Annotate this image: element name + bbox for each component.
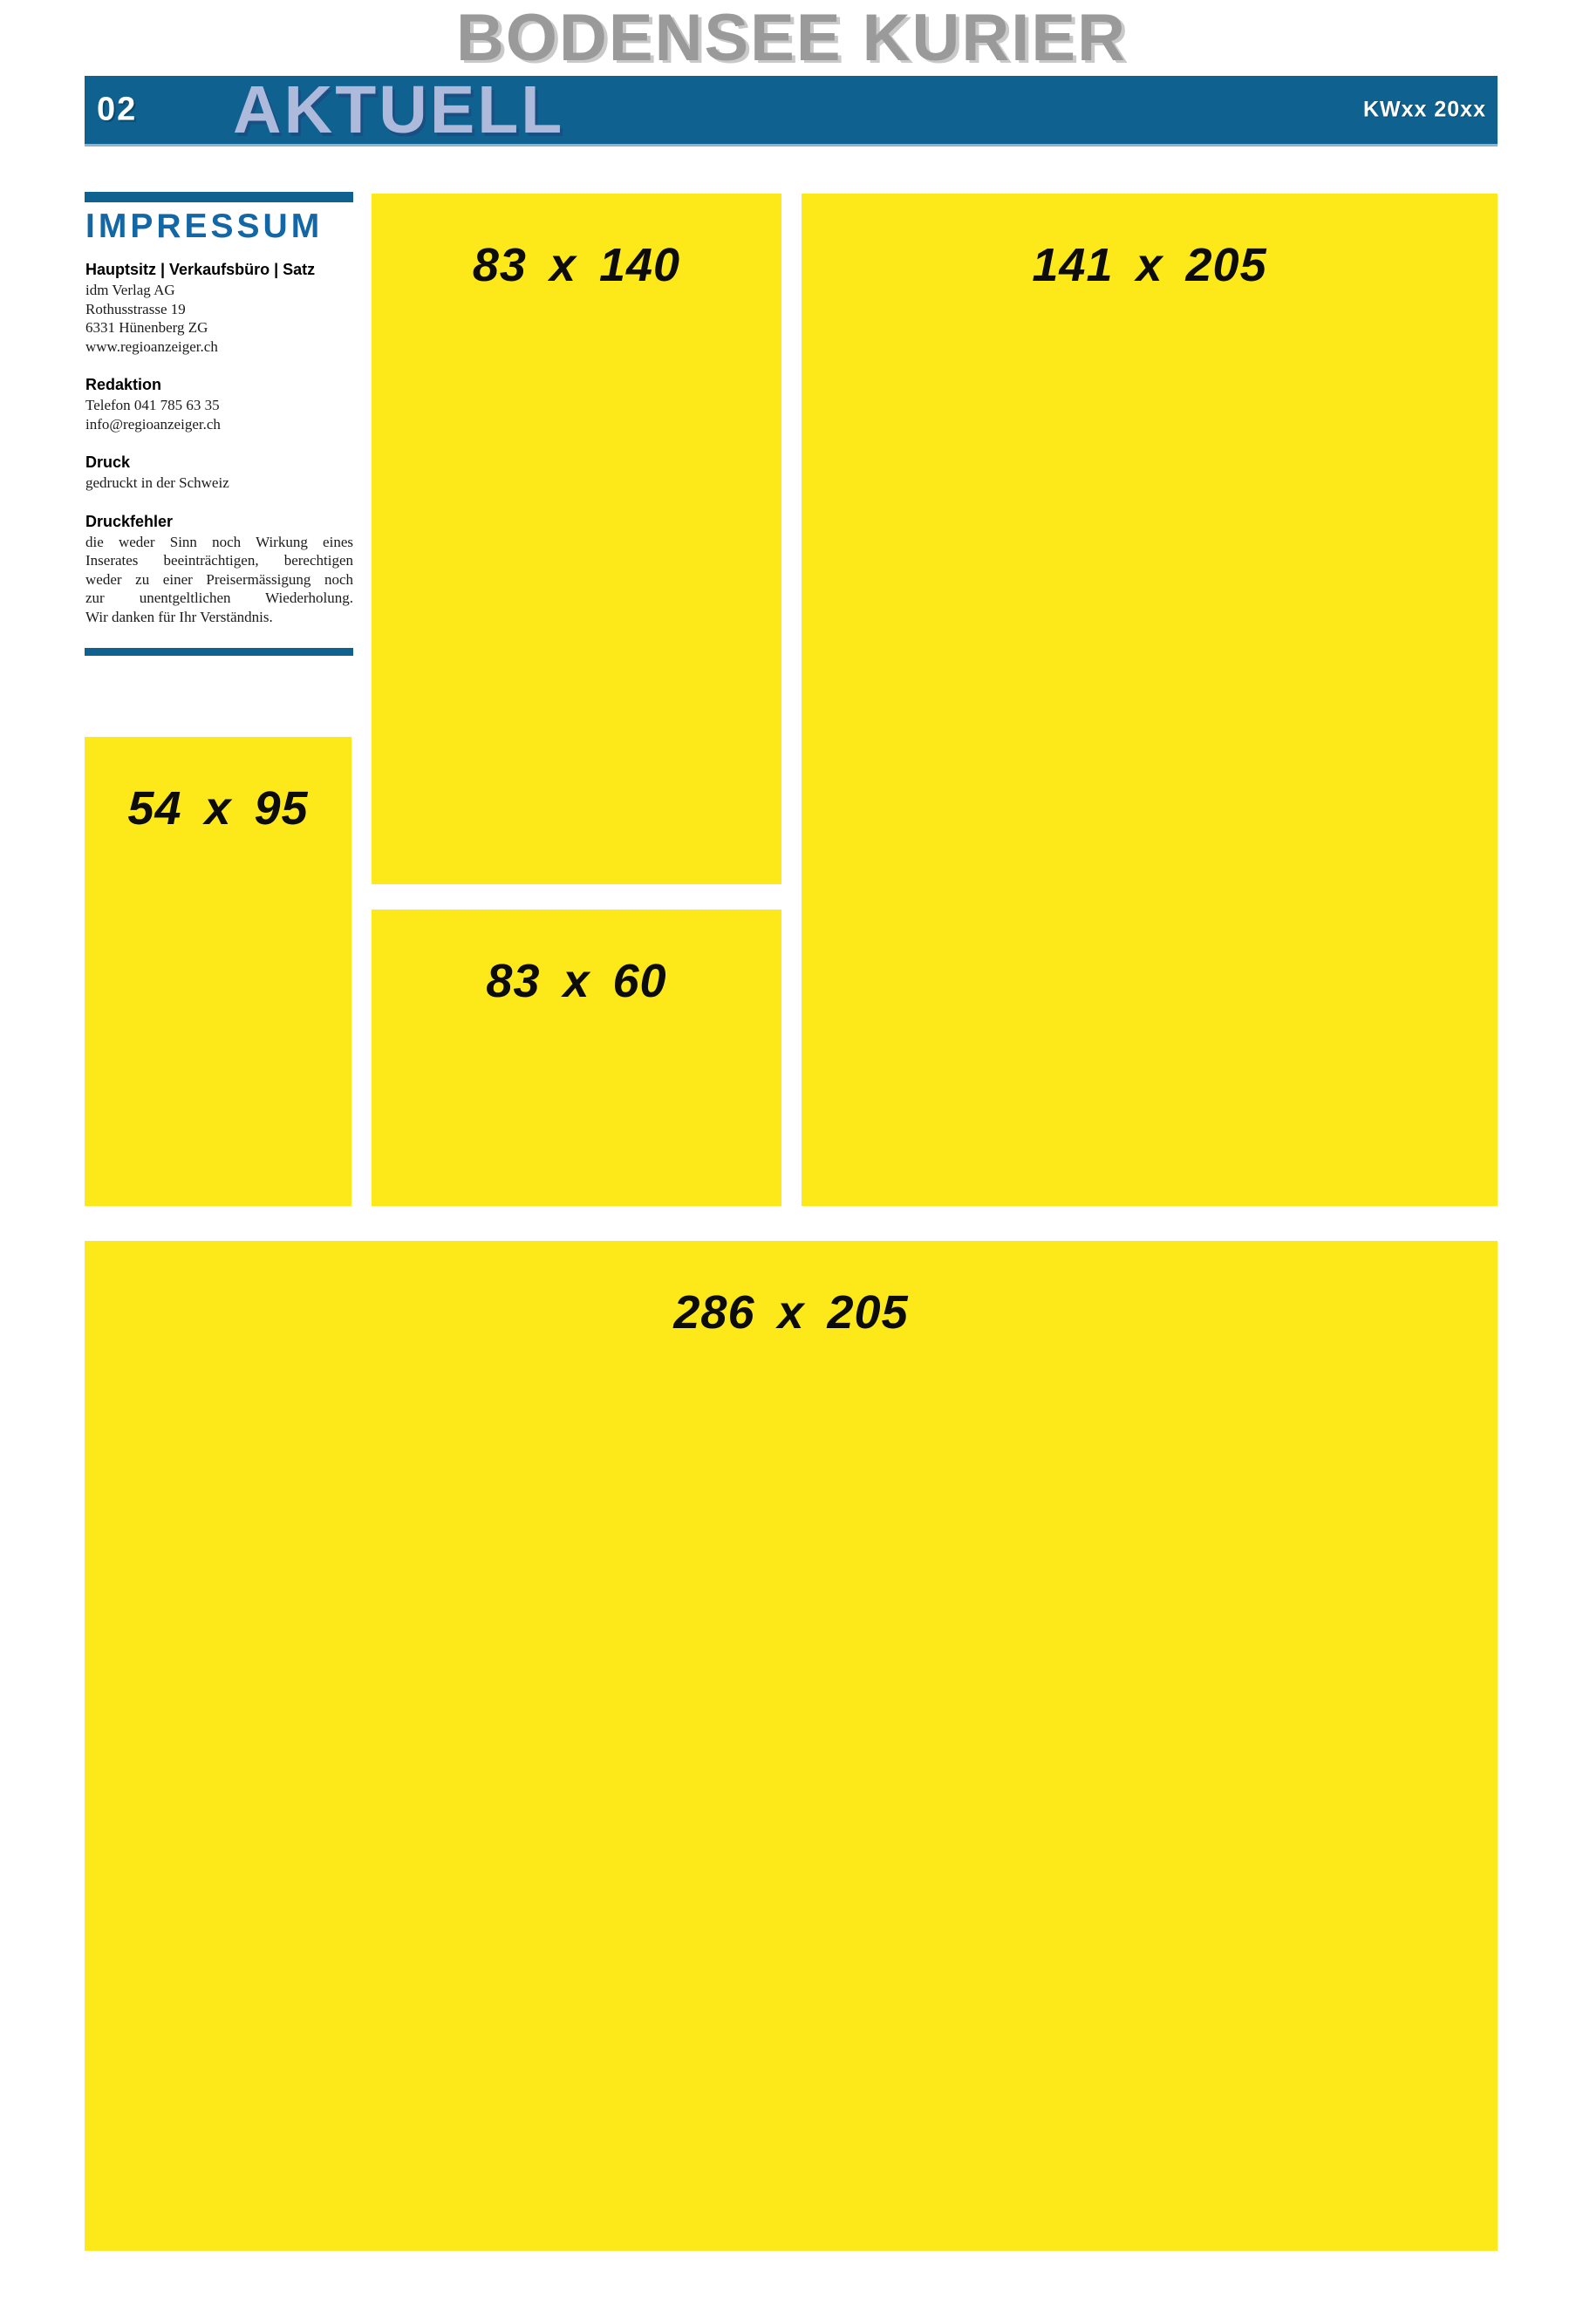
- ad-slot-54x95: 54 x 95: [85, 737, 351, 1206]
- impressum-line: weder zu einer Preisermässigung noch: [85, 570, 353, 590]
- impressum-line: Rothusstrasse 19: [85, 300, 353, 319]
- impressum-title: IMPRESSUM: [85, 208, 353, 245]
- newspaper-page: BODENSEE KURIER 02 AKTUELL KWxx 20xx IMP…: [0, 0, 1583, 2324]
- impressum-line: idm Verlag AG: [85, 281, 353, 300]
- section-header-bar: 02 AKTUELL KWxx 20xx: [85, 76, 1498, 147]
- impressum-line: gedruckt in der Schweiz: [85, 474, 353, 493]
- ad-slot-size-label: 83 x 60: [372, 910, 781, 1007]
- page-number: 02: [97, 92, 137, 129]
- impressum-body: Hauptsitz | Verkaufsbüro | Satz idm Verl…: [85, 260, 353, 626]
- impressum-section-druckfehler: Druckfehler die weder Sinn noch Wirkung …: [85, 512, 353, 627]
- ad-slot-286x205: 286 x 205: [85, 1241, 1498, 2251]
- impressum-block: IMPRESSUM Hauptsitz | Verkaufsbüro | Sat…: [85, 192, 353, 645]
- impressum-line: 6331 Hünenberg ZG: [85, 318, 353, 337]
- impressum-line: info@regioanzeiger.ch: [85, 415, 353, 434]
- masthead-title: BODENSEE KURIER: [0, 3, 1583, 73]
- ad-slot-size-label: 286 x 205: [85, 1241, 1498, 1339]
- ad-slot-141x205: 141 x 205: [802, 194, 1498, 1206]
- impressum-top-rule: [85, 192, 353, 202]
- impressum-bottom-rule: [85, 648, 353, 656]
- ad-slot-size-label: 141 x 205: [802, 194, 1498, 291]
- ad-slot-83x140: 83 x 140: [372, 194, 781, 884]
- impressum-line: Wir danken für Ihr Verständnis.: [85, 608, 353, 627]
- section-title: AKTUELL: [233, 77, 564, 144]
- ad-slot-size-label: 54 x 95: [85, 737, 351, 835]
- issue-code: KWxx 20xx: [1363, 98, 1486, 123]
- impressum-line: www.regioanzeiger.ch: [85, 337, 353, 357]
- impressum-heading: Hauptsitz | Verkaufsbüro | Satz: [85, 260, 353, 279]
- ad-slot-size-label: 83 x 140: [372, 194, 781, 291]
- impressum-section-redaktion: Redaktion Telefon 041 785 63 35 info@reg…: [85, 375, 353, 433]
- ad-slot-83x60: 83 x 60: [372, 910, 781, 1206]
- impressum-line: Telefon 041 785 63 35: [85, 396, 353, 415]
- impressum-line: zur unentgeltlichen Wiederholung.: [85, 589, 353, 608]
- impressum-line: Inserates beeinträchtigen, berechtigen: [85, 551, 353, 570]
- impressum-heading: Druck: [85, 453, 353, 472]
- impressum-section-contact: Hauptsitz | Verkaufsbüro | Satz idm Verl…: [85, 260, 353, 356]
- impressum-line: die weder Sinn noch Wirkung eines: [85, 533, 353, 552]
- impressum-heading: Druckfehler: [85, 512, 353, 531]
- impressum-heading: Redaktion: [85, 375, 353, 394]
- impressum-section-druck: Druck gedruckt in der Schweiz: [85, 453, 353, 493]
